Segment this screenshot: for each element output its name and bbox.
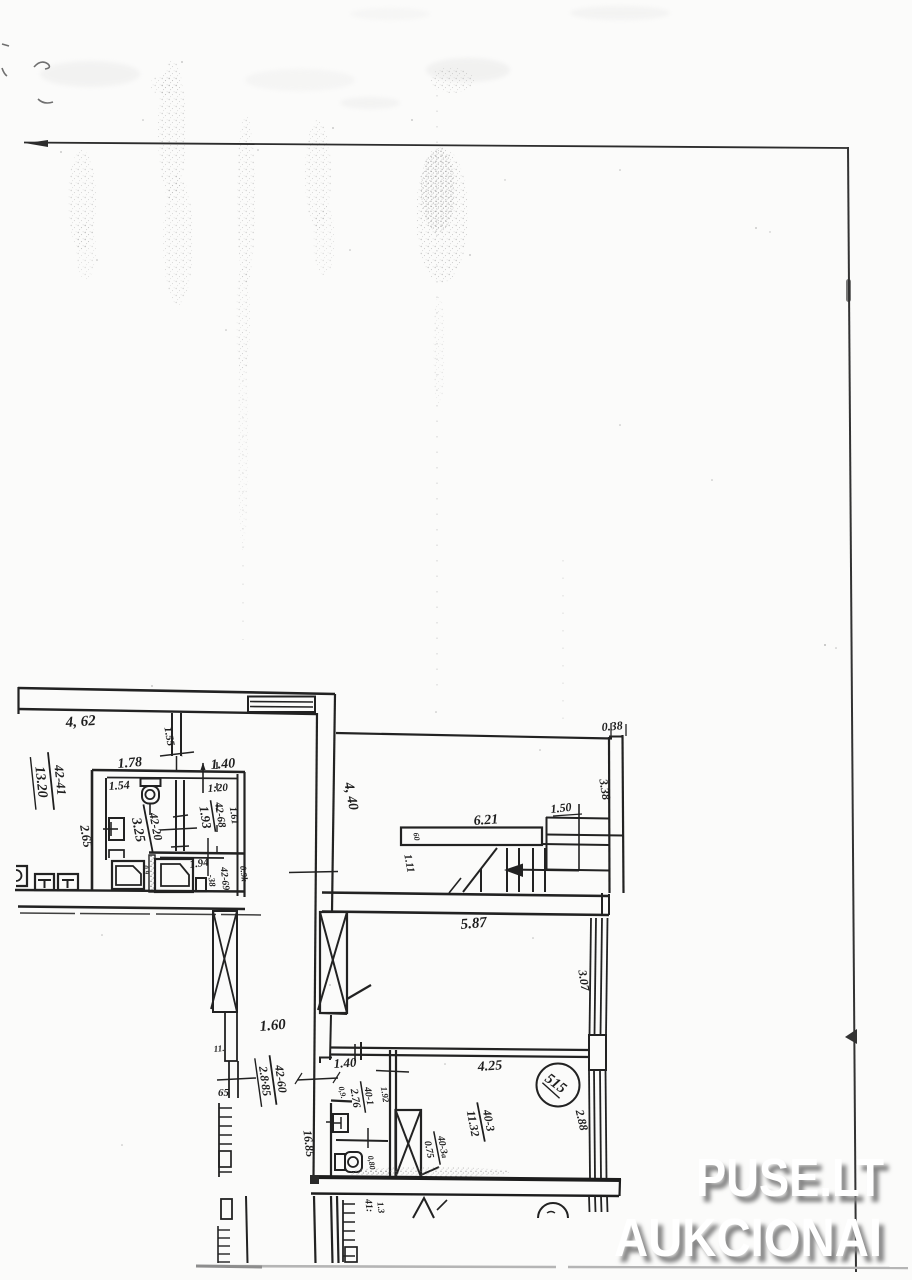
svg-text:0,9.: 0,9.	[337, 1086, 348, 1100]
svg-text:65: 65	[218, 1087, 230, 1099]
svg-text:41:: 41:	[362, 1197, 375, 1213]
svg-text:42-41: 42-41	[51, 763, 69, 796]
svg-text:1.61: 1.61	[227, 806, 240, 825]
svg-text:1.60: 1.60	[259, 1017, 287, 1035]
svg-text:515: 515	[542, 1071, 570, 1098]
svg-text:4, 62: 4, 62	[64, 713, 97, 731]
svg-text:6.21: 6.21	[473, 812, 498, 829]
svg-text:4.25: 4.25	[476, 1058, 502, 1075]
svg-text:1.92: 1.92	[379, 1086, 391, 1104]
svg-text:1.55: 1.55	[161, 726, 176, 748]
svg-text:3.38: 3.38	[596, 777, 613, 801]
svg-text:-38: -38	[206, 874, 217, 888]
svg-text:4, 40: 4, 40	[340, 780, 360, 811]
svg-text:2.76: 2.76	[348, 1087, 363, 1109]
svg-text:1.54: 1.54	[108, 778, 130, 793]
svg-text:3.07: 3.07	[575, 968, 592, 993]
svg-text:AUKCIONAI: AUKCIONAI	[614, 1208, 882, 1268]
svg-text:0,80: 0,80	[366, 1155, 377, 1170]
svg-text:3.25: 3.25	[128, 816, 148, 844]
svg-text:1.94: 1.94	[189, 856, 210, 871]
svg-text:1.40: 1.40	[333, 1054, 357, 1071]
svg-text:PUSE.LT: PUSE.LT	[696, 1148, 884, 1208]
svg-text:1.3: 1.3	[375, 1201, 387, 1214]
svg-text:0.75: 0.75	[422, 1140, 436, 1159]
svg-text:1.50: 1.50	[550, 800, 572, 816]
svg-text:5.87: 5.87	[460, 915, 488, 933]
svg-text:1.93: 1.93	[196, 805, 214, 830]
svg-text:1:20: 1:20	[207, 782, 228, 795]
svg-text:60: 60	[411, 832, 421, 841]
svg-text:16.85: 16.85	[300, 1129, 317, 1158]
svg-text:0.9k: 0.9k	[238, 865, 250, 882]
svg-text:1.11: 1.11	[401, 853, 416, 874]
svg-text:0,9: 0,9	[141, 865, 150, 875]
svg-text:42-69: 42-69	[218, 866, 231, 891]
svg-text:11.: 11.	[213, 1043, 225, 1054]
svg-text:2.88: 2.88	[572, 1107, 591, 1132]
svg-text:0.38: 0.38	[601, 718, 623, 734]
